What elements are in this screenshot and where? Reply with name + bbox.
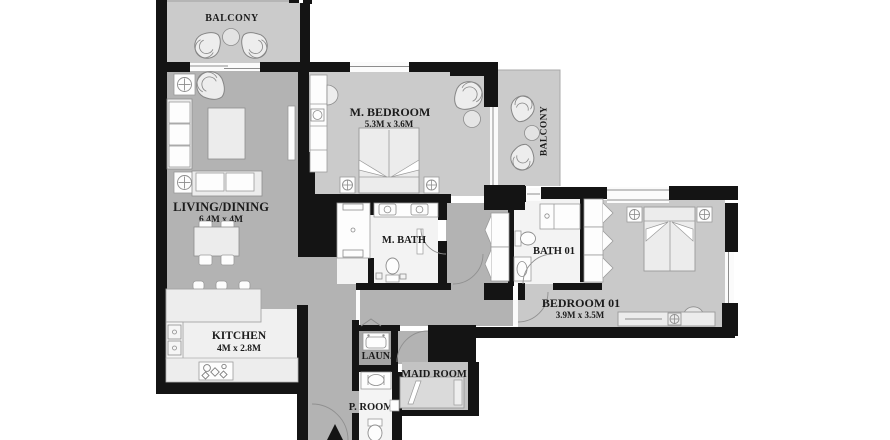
svg-text:5.3M x 3.6M: 5.3M x 3.6M [365,119,414,129]
svg-text:4M x 2.8M: 4M x 2.8M [217,344,261,354]
svg-text:M. BATH: M. BATH [382,235,426,246]
svg-text:BALCONY: BALCONY [540,106,550,156]
svg-text:P. ROOM: P. ROOM [349,402,394,413]
svg-text:KITCHEN: KITCHEN [212,330,267,342]
svg-text:BATH 01: BATH 01 [533,246,575,257]
svg-text:BEDROOM 01: BEDROOM 01 [542,296,620,310]
svg-text:3.9M x 3.5M: 3.9M x 3.5M [556,310,605,320]
svg-text:MAID ROOM: MAID ROOM [401,369,467,380]
svg-text:M. BEDROOM: M. BEDROOM [350,105,431,119]
svg-text:LAUN.: LAUN. [362,351,393,362]
svg-text:LIVING/DINING: LIVING/DINING [173,200,269,214]
svg-text:BALCONY: BALCONY [205,13,259,24]
